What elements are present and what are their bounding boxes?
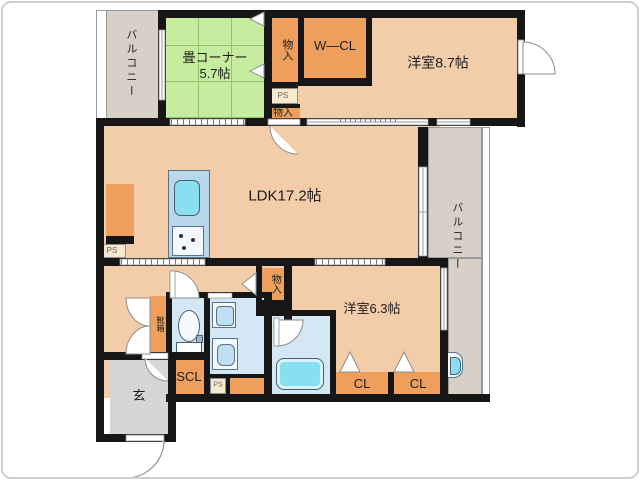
image-frame: [1, 1, 639, 479]
floor-plan: バルコニー 畳コーナー 5.7帖 物入 W—CL 洋室8.7帖 PS 物入 LD…: [0, 0, 640, 480]
